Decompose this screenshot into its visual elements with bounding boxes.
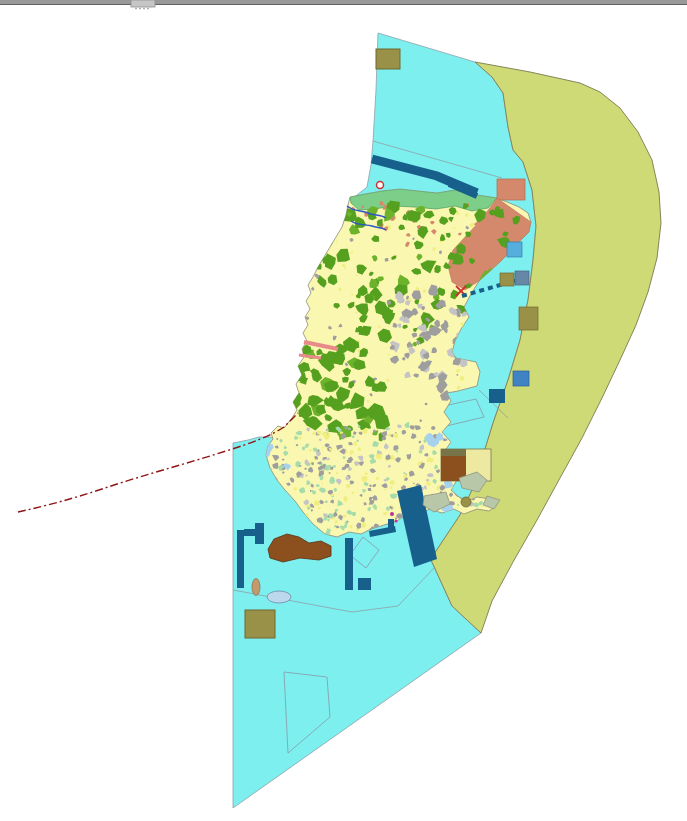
marine-parcel-east	[513, 371, 529, 386]
facility-parcel-ne-small	[500, 273, 514, 286]
facility-parcel-sw	[245, 610, 275, 638]
facility-parcel-ne-large	[519, 307, 538, 330]
map-canvas[interactable]	[0, 0, 687, 821]
port-jetty-west-head	[255, 523, 264, 544]
compound-parcel-se-header	[441, 449, 466, 456]
village-zone-rect-ne	[497, 179, 525, 200]
aquaculture-parcel	[507, 242, 522, 257]
point-feature-magenta-1	[390, 512, 394, 516]
port-basin-south	[358, 578, 371, 590]
port-parcel-ne	[489, 389, 505, 403]
map-viewport	[0, 0, 687, 821]
shoal-ellipse-sw	[267, 591, 291, 603]
facility-parcel-north	[376, 49, 400, 69]
port-jetty-west-arm	[244, 529, 256, 536]
facility-parcel-slate	[515, 271, 529, 285]
port-jetty-west-stem	[237, 530, 244, 588]
circle-marker-nw	[377, 182, 384, 189]
splitter-grip[interactable]	[131, 0, 155, 7]
coastal-jetty-south-spur	[388, 519, 394, 529]
olive-islet-se	[461, 497, 471, 507]
port-pier-south	[345, 538, 353, 590]
tan-feature-sw	[252, 579, 260, 596]
point-feature-magenta-2	[395, 520, 398, 523]
